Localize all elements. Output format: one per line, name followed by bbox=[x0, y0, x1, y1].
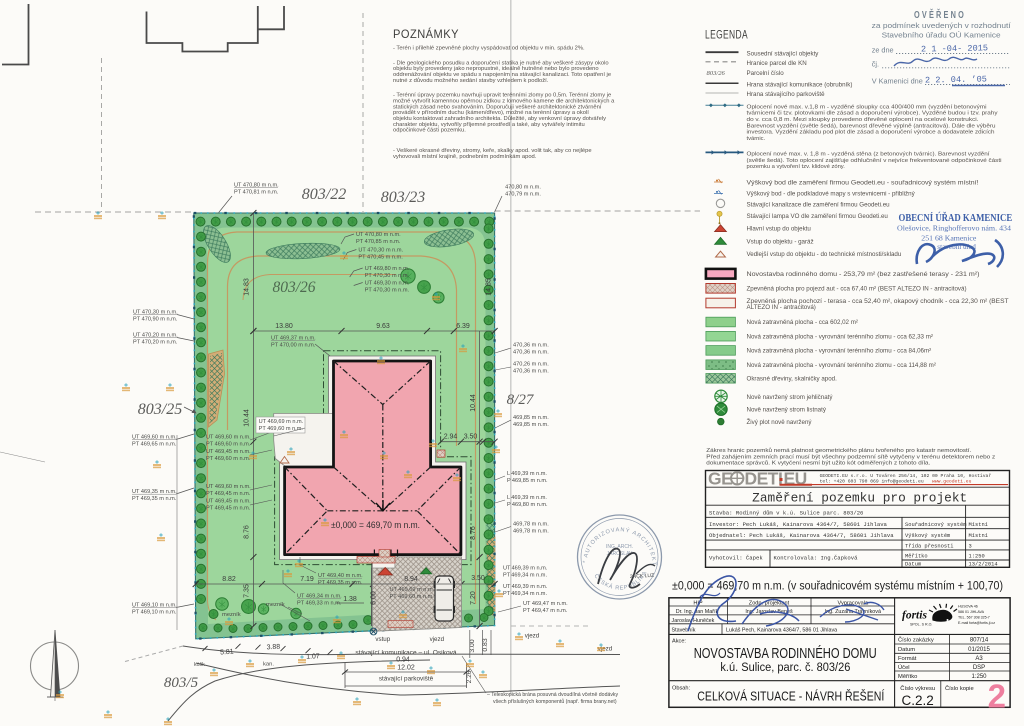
svg-text:13/2/2014: 13/2/2014 bbox=[969, 562, 998, 568]
svg-text:PT 469,47 m n.m.: PT 469,47 m n.m. bbox=[523, 608, 568, 614]
svg-text:PT 469,35 m n.m.: PT 469,35 m n.m. bbox=[318, 580, 363, 586]
svg-text:kóšk: kóšk bbox=[194, 662, 205, 668]
svg-text:2: 2 bbox=[988, 678, 1006, 715]
svg-text:Nově navržený strom jehličnatý: Nově navržený strom jehličnatý bbox=[747, 394, 834, 401]
svg-text:803/26: 803/26 bbox=[272, 279, 315, 296]
svg-text:Číslo výkresu: Číslo výkresu bbox=[900, 685, 935, 692]
svg-text:PT 469,60 m n.m.: PT 469,60 m n.m. bbox=[206, 456, 251, 462]
svg-text:dokumentace správců. K vytyčen: dokumentace správců. K vytyčení nesmí bý… bbox=[706, 460, 930, 467]
svg-text:UT 469,39 m n.m.: UT 469,39 m n.m. bbox=[503, 566, 548, 572]
svg-text:1:250: 1:250 bbox=[969, 554, 985, 560]
svg-text:Hrana stávajícího parkoviště: Hrana stávajícího parkoviště bbox=[747, 91, 826, 98]
svg-text:Hranice parcel dle KN: Hranice parcel dle KN bbox=[747, 60, 807, 67]
svg-text:9.63: 9.63 bbox=[376, 323, 390, 330]
svg-text:PT 470,30 m n.m.: PT 470,30 m n.m. bbox=[365, 273, 410, 279]
svg-text:±0,000 = 469,70 m n.m.: ±0,000 = 469,70 m n.m. bbox=[331, 520, 420, 530]
svg-text:UT 469,69 m n.m.: UT 469,69 m n.m. bbox=[390, 587, 435, 593]
svg-text:PT 470,90 m n.m.: PT 470,90 m n.m. bbox=[133, 317, 178, 323]
svg-text:803/23: 803/23 bbox=[381, 189, 425, 206]
svg-text:Dr. Ing. Jan Mařík: Dr. Ing. Jan Mařík bbox=[676, 609, 719, 615]
svg-text:Obsah:: Obsah: bbox=[672, 686, 690, 692]
svg-text:PT 470,00 m n.m.: PT 470,00 m n.m. bbox=[271, 343, 316, 349]
svg-text:469,78 m n.m.: 469,78 m n.m. bbox=[513, 522, 549, 528]
svg-text:UT 469,45 m n.m.: UT 469,45 m n.m. bbox=[206, 499, 251, 505]
svg-text:GE: GE bbox=[708, 469, 732, 489]
svg-text:2 1 -04- 2015: 2 1 -04- 2015 bbox=[921, 43, 988, 54]
svg-text:UT 469,39 m n.m.: UT 469,39 m n.m. bbox=[503, 584, 548, 590]
svg-text:vjezd: vjezd bbox=[430, 636, 445, 643]
svg-text:251 68 Kamenice: 251 68 Kamenice bbox=[921, 233, 977, 242]
svg-text:Nová zatravněná plocha - vyrov: Nová zatravněná plocha - vyrovnání terén… bbox=[747, 333, 933, 340]
svg-text:čj.: čj. bbox=[872, 60, 879, 69]
svg-text:- Terén i přilehlé zpevněné pl: - Terén i přilehlé zpevněné plochy vyspá… bbox=[393, 45, 585, 51]
svg-text:OBECNÍ ÚŘAD KAMENICE: OBECNÍ ÚŘAD KAMENICE bbox=[899, 212, 1013, 224]
svg-text:PT 469,34 m n.m.: PT 469,34 m n.m. bbox=[503, 591, 547, 597]
svg-text:kan.: kan. bbox=[263, 662, 274, 668]
svg-text:5.81: 5.81 bbox=[220, 649, 234, 657]
svg-text:E-mail forta@fortis.ji.cz: E-mail forta@fortis.ji.cz bbox=[958, 621, 995, 625]
svg-text:1.07: 1.07 bbox=[306, 653, 320, 660]
svg-text:470,79 m n.m.: 470,79 m n.m. bbox=[504, 192, 541, 198]
svg-text:ze dne: ze dne bbox=[872, 45, 894, 54]
svg-text:Parcelní číslo: Parcelní číslo bbox=[747, 70, 785, 77]
svg-text:Nově navržený strom listnatý: Nově navržený strom listnatý bbox=[747, 407, 827, 414]
svg-text:Místní: Místní bbox=[969, 522, 988, 528]
svg-text:PT 470,20 m n.m.: PT 470,20 m n.m. bbox=[133, 340, 178, 346]
svg-text:GEODETI.EU s.r.o. U Tová: GEODETI.EU s.r.o. U Továren 256/14, 102 … bbox=[820, 473, 992, 479]
svg-text:803/22: 803/22 bbox=[302, 186, 346, 203]
svg-text:469,78 m n.m.: 469,78 m n.m. bbox=[513, 529, 549, 535]
svg-text:470,36 m n.m.: 470,36 m n.m. bbox=[513, 343, 549, 349]
svg-text:UT 469,60 m n.m.: UT 469,60 m n.m. bbox=[206, 435, 251, 441]
svg-text:Datum: Datum bbox=[898, 647, 915, 653]
svg-text:P 469,85 m n.m.: P 469,85 m n.m. bbox=[507, 478, 548, 484]
svg-text:2.94: 2.94 bbox=[444, 434, 458, 441]
svg-text:Olešovice, Ringhofferovo nám.: Olešovice, Ringhofferovo nám. 434 bbox=[897, 223, 1011, 232]
svg-text:PT 469,10 m n.m.: PT 469,10 m n.m. bbox=[132, 610, 177, 616]
svg-text:470,36 m n.m.: 470,36 m n.m. bbox=[513, 350, 549, 356]
svg-text:14.83: 14.83 bbox=[244, 278, 251, 296]
svg-text:13.80: 13.80 bbox=[275, 323, 293, 330]
svg-text:nutné z důvodu možného sedání: nutné z důvodu možného sedání stavby vzh… bbox=[393, 77, 549, 84]
svg-text:2NCK LUZ: 2NCK LUZ bbox=[630, 573, 654, 580]
svg-text:UT 469,80 m n.m.: UT 469,80 m n.m. bbox=[365, 266, 410, 272]
svg-text:Stávající kanalizace dle zaměř: Stávající kanalizace dle zaměření firmou… bbox=[747, 201, 891, 208]
svg-text:Barevnost vyzdění (světle šedá: Barevnost vyzdění (světle šedá), barevno… bbox=[747, 123, 996, 129]
svg-text:Akce:: Akce: bbox=[672, 639, 686, 645]
svg-text:7.35: 7.35 bbox=[244, 584, 251, 598]
svg-text:PT 469,34 m n.m.: PT 469,34 m n.m. bbox=[503, 573, 547, 579]
svg-text:Výškový systém: Výškový systém bbox=[905, 533, 950, 539]
svg-text:OVĚŘENO: OVĚŘENO bbox=[914, 8, 966, 21]
svg-text:3.50: 3.50 bbox=[471, 575, 485, 582]
svg-text:Oplocení nové max. v. 1,8 m -: Oplocení nové max. v. 1,8 m - vyzděná st… bbox=[747, 152, 990, 158]
svg-text:1.38: 1.38 bbox=[343, 596, 357, 603]
svg-text:Stavebník: Stavebník bbox=[672, 628, 696, 634]
svg-text:12.02: 12.02 bbox=[397, 665, 415, 672]
svg-text:Souřadnicový systém: Souřadnicový systém bbox=[905, 522, 966, 528]
svg-text:Nová zatravněná plocha - vyrov: Nová zatravněná plocha - vyrovnání terén… bbox=[747, 348, 932, 355]
svg-text:SPOL. S R.O.: SPOL. S R.O. bbox=[910, 622, 932, 626]
svg-text:TEL. 567 308 325-7: TEL. 567 308 325-7 bbox=[958, 616, 990, 620]
svg-text:Lukáš Pech, Kainarova 4364/7,: Lukáš Pech, Kainarova 4364/7, 586 01 Jih… bbox=[726, 628, 837, 634]
svg-text:8/27: 8/27 bbox=[507, 392, 535, 408]
svg-text:UT 470,80 m n.m.: UT 470,80 m n.m. bbox=[356, 232, 401, 238]
svg-text:807/14: 807/14 bbox=[970, 638, 989, 644]
svg-text:Měřítko: Měřítko bbox=[898, 674, 917, 680]
svg-text:ALTEZO IN - antracitová): ALTEZO IN - antracitová) bbox=[747, 304, 816, 311]
svg-text:L 469,39 m n.m.: L 469,39 m n.m. bbox=[507, 471, 547, 477]
svg-text:3.88: 3.88 bbox=[266, 644, 280, 652]
svg-text:469,85 m n.m.: 469,85 m n.m. bbox=[513, 415, 549, 421]
svg-text:PT 469,65 m n.m.: PT 469,65 m n.m. bbox=[132, 442, 177, 448]
svg-text:PT 469,33 m n.m.: PT 469,33 m n.m. bbox=[297, 601, 342, 607]
svg-text:mezník: mezník bbox=[222, 612, 241, 618]
svg-text:vjezd: vjezd bbox=[525, 633, 540, 640]
svg-text:odpočinkové části pozemku.: odpočinkové části pozemku. bbox=[393, 128, 466, 134]
svg-text:P 469,80 m n.m.: P 469,80 m n.m. bbox=[507, 502, 548, 508]
svg-text:6.39: 6.39 bbox=[456, 323, 470, 330]
svg-text:– Teleskopická brána posuvná d: – Teleskopická brána posuvná dvoudílná v… bbox=[487, 692, 619, 698]
svg-text:LEGENDA: LEGENDA bbox=[705, 30, 748, 42]
svg-text:Novostavba rodinného domu - 25: Novostavba rodinného domu - 253,79 m² (b… bbox=[747, 271, 980, 278]
svg-text:1:250: 1:250 bbox=[971, 674, 987, 680]
svg-text:CELKOVÁ SITUACE - NÁVRH ŘEŠENÍ: CELKOVÁ SITUACE - NÁVRH ŘEŠENÍ bbox=[697, 689, 884, 704]
svg-text:tel: +420 603 790 069: tel: +420 603 790 069 info@geodeti.eu bbox=[820, 479, 924, 485]
svg-text:2 2. 04. ’05: 2 2. 04. ’05 bbox=[925, 74, 987, 85]
svg-text:Investor: Pech Lukáš, Kainaro: Investor: Pech Lukáš, Kainarova 4364/7, … bbox=[709, 521, 888, 528]
svg-text:UT 469,45 m n.m.: UT 469,45 m n.m. bbox=[206, 449, 251, 455]
svg-text:Vyhotovil: Čapek: Vyhotovil: Čapek bbox=[709, 555, 763, 562]
svg-text:2.26: 2.26 bbox=[466, 670, 473, 683]
svg-text:Formát: Formát bbox=[898, 656, 917, 662]
svg-text:PT 470,81 m n.m.: PT 470,81 m n.m. bbox=[234, 190, 279, 196]
svg-text:PT 470,30 m n.m.: PT 470,30 m n.m. bbox=[365, 288, 410, 294]
svg-text:DSP: DSP bbox=[973, 665, 985, 671]
svg-text:Nová zatravněná plocha - vyrov: Nová zatravněná plocha - vyrovnání terén… bbox=[747, 362, 936, 369]
svg-text:tvárnic.: tvárnic. bbox=[747, 136, 766, 142]
svg-text:A3: A3 bbox=[975, 656, 983, 662]
svg-text:UT 469,60 m n.m.: UT 469,60 m n.m. bbox=[206, 484, 251, 490]
svg-text:803/5: 803/5 bbox=[164, 675, 199, 691]
svg-text:Měřítko: Měřítko bbox=[905, 554, 928, 560]
svg-text:Zpevněná plocha pro pojezd aut: Zpevněná plocha pro pojezd aut - cca 67,… bbox=[747, 286, 967, 293]
svg-text:PT 470,85 m n.m.: PT 470,85 m n.m. bbox=[356, 239, 401, 245]
svg-text:DETI: DETI bbox=[745, 469, 783, 489]
svg-text:470,36 m n.m.: 470,36 m n.m. bbox=[513, 369, 549, 375]
svg-text:HUSOVA 46: HUSOVA 46 bbox=[958, 605, 978, 609]
svg-text:do v. cca 0,8 m. Mezi sloupky: do v. cca 0,8 m. Mezi sloupky provedeno … bbox=[747, 117, 979, 123]
svg-text:fortis: fortis bbox=[902, 609, 927, 621]
svg-text:10.44: 10.44 bbox=[244, 409, 251, 427]
svg-text:14.85: 14.85 bbox=[486, 278, 493, 296]
svg-text:8.94: 8.94 bbox=[404, 576, 418, 583]
svg-text:6.00: 6.00 bbox=[371, 591, 378, 605]
svg-text:01/2015: 01/2015 bbox=[968, 647, 990, 653]
svg-text:Stávající lampa VO dle zaměřen: Stávající lampa VO dle zaměření firmou G… bbox=[747, 213, 889, 220]
svg-text:PT 469,60 m n.m.: PT 469,60 m n.m. bbox=[259, 426, 304, 432]
svg-text:všech příslušných komponentů (: všech příslušných komponentů (např. firm… bbox=[493, 698, 617, 705]
svg-text:PT 469,45 m n.m.: PT 469,45 m n.m. bbox=[206, 506, 251, 512]
svg-text:Výškový bod dle zaměření firmo: Výškový bod dle zaměření firmou Geodeti.… bbox=[747, 179, 979, 186]
svg-text:803/26: 803/26 bbox=[707, 70, 726, 77]
svg-text:L 469,39 m n.m.: L 469,39 m n.m. bbox=[507, 495, 547, 501]
svg-text:Hrana stávající komunikace (ob: Hrana stávající komunikace (obrubník) bbox=[747, 81, 853, 88]
svg-text:(světle šedá). Toto oplocení z: (světle šedá). Toto oplocení zajišťuje o… bbox=[747, 158, 1002, 164]
svg-text:Zaměření pozemku pro projekt: Zaměření pozemku pro projekt bbox=[752, 492, 967, 506]
svg-text:Oplocení nové max. v.1,8 m - v: Oplocení nové max. v.1,8 m - vyzděné slo… bbox=[747, 104, 987, 110]
svg-text:±0,000 = 469,70 m n.m. (v souř: ±0,000 = 469,70 m n.m. (v souřadnicovém … bbox=[672, 581, 1003, 593]
svg-text:469,85 m n.m.: 469,85 m n.m. bbox=[513, 422, 549, 428]
svg-text:PT 469,35 m n.m.: PT 469,35 m n.m. bbox=[132, 496, 177, 502]
svg-text:vjezd: vjezd bbox=[598, 646, 613, 653]
svg-text:470,80 m n.m.: 470,80 m n.m. bbox=[504, 185, 541, 191]
svg-text:Číslo zakázky: Číslo zakázky bbox=[898, 637, 934, 644]
svg-text:UT 470,30 m n.m.: UT 470,30 m n.m. bbox=[358, 248, 403, 254]
svg-text:Před zahájením zemních prací m: Před zahájením zemních prací musí být vš… bbox=[706, 454, 995, 460]
svg-text:PT 469,45 m n.m.: PT 469,45 m n.m. bbox=[206, 491, 251, 497]
svg-text:www.geodeti.eu: www.geodeti.eu bbox=[932, 479, 972, 485]
svg-text:Vedlejší vstup do objektu - do: Vedlejší vstup do objektu - do technické… bbox=[747, 251, 902, 258]
svg-text:803/25: 803/25 bbox=[138, 401, 182, 418]
svg-text:PT 470,45 m n.m.: PT 470,45 m n.m. bbox=[358, 255, 403, 261]
svg-text:Číslo kopie: Číslo kopie bbox=[945, 685, 974, 692]
svg-text:POZNÁMKY: POZNÁMKY bbox=[393, 28, 459, 41]
svg-text:tvárnicemi či tzv. plotovkami: tvárnicemi či tzv. plotovkami dle zásad … bbox=[747, 111, 998, 117]
svg-text:stávající parkoviště: stávající parkoviště bbox=[379, 676, 434, 683]
svg-text:UT 469,69 m n.m.: UT 469,69 m n.m. bbox=[259, 419, 304, 425]
svg-text:vyhovovali místní krajině, pod: vyhovovali místní krajině, podnebním pod… bbox=[393, 154, 537, 160]
svg-text:k.ú. Sulice, parc. č. 803/26: k.ú. Sulice, parc. č. 803/26 bbox=[720, 660, 850, 674]
svg-text:Vstup do objektu - garáž: Vstup do objektu - garáž bbox=[747, 238, 814, 245]
svg-text:investora. Vyzdění základu pod: investora. Vyzdění základu pod plot dle … bbox=[747, 130, 995, 136]
svg-text:V Kamenici dne: V Kamenici dne bbox=[872, 76, 923, 85]
svg-text:vstup: vstup bbox=[375, 636, 390, 643]
svg-text:Zákres hranic pozemků nemá pla: Zákres hranic pozemků nemá platnost geom… bbox=[706, 447, 971, 454]
svg-text:Okrasné dřeviny, skalničky apo: Okrasné dřeviny, skalničky apod. bbox=[747, 376, 838, 383]
svg-text:Výškový bod - dle podkladové m: Výškový bod - dle podkladové mapy s vrst… bbox=[747, 191, 916, 198]
svg-text:stávající komunikace – ul. O: stávající komunikace – ul. Osiková bbox=[355, 650, 456, 657]
svg-text:0.94: 0.94 bbox=[396, 657, 410, 664]
svg-text:za podmínek uvedených v rozhod: za podmínek uvedených v rozhodnutí bbox=[872, 21, 1011, 30]
svg-text:7.20: 7.20 bbox=[470, 591, 477, 605]
svg-text:Datum: Datum bbox=[905, 562, 921, 568]
svg-text:Stavba: Rodinný dům v k.ú. Su: Stavba: Rodinný dům v k.ú. Sulice parc. … bbox=[709, 509, 863, 516]
svg-text:UT 469,30 m n.m.: UT 469,30 m n.m. bbox=[365, 281, 410, 287]
svg-text:Hlavní vstup do objektu: Hlavní vstup do objektu bbox=[747, 226, 812, 233]
svg-text:8.82: 8.82 bbox=[222, 576, 236, 583]
svg-text:Účel: Účel bbox=[898, 664, 910, 671]
svg-text:Živý plot nově navržený: Živý plot nově navržený bbox=[747, 418, 813, 426]
svg-text:PT 469,60 m n.m.: PT 469,60 m n.m. bbox=[390, 594, 435, 600]
svg-text:586 01 JIHLAVA: 586 01 JIHLAVA bbox=[958, 610, 985, 614]
svg-text:Nová zatravněná plocha - cca 6: Nová zatravněná plocha - cca 602,02 m² bbox=[747, 319, 858, 326]
svg-text:Kontrolovala: Ing.Čapková: Kontrolovala: Ing.Čapková bbox=[774, 555, 859, 562]
svg-text:470,26 m n.m.: 470,26 m n.m. bbox=[513, 362, 549, 368]
svg-text:Třída přesnosti: Třída přesnosti bbox=[905, 544, 954, 550]
svg-text:UT 469,47 m n.m.: UT 469,47 m n.m. bbox=[523, 601, 568, 607]
svg-text:8.76: 8.76 bbox=[244, 525, 251, 539]
svg-text:3.50: 3.50 bbox=[464, 434, 478, 441]
svg-text:Místní: Místní bbox=[969, 533, 988, 539]
svg-text:Sousední stávající objekty: Sousední stávající objekty bbox=[747, 50, 820, 57]
svg-text:3: 3 bbox=[969, 544, 972, 550]
svg-text:C.2.2: C.2.2 bbox=[902, 693, 934, 708]
svg-text:PT 469,60 m n.m.: PT 469,60 m n.m. bbox=[206, 442, 251, 448]
svg-text:Objednatel: Pech Lukáš, Kainar: Objednatel: Pech Lukáš, Kainarova 4364/7… bbox=[709, 532, 894, 539]
svg-text:7.19: 7.19 bbox=[300, 576, 314, 583]
svg-text:pozemku a vytvoření tzv. klido: pozemku a vytvoření tzv. klidové zóny. bbox=[747, 164, 846, 170]
svg-text:10.44: 10.44 bbox=[470, 394, 477, 412]
svg-text:Stavebního úřadu OÚ Kamenice: Stavebního úřadu OÚ Kamenice bbox=[882, 30, 1001, 39]
